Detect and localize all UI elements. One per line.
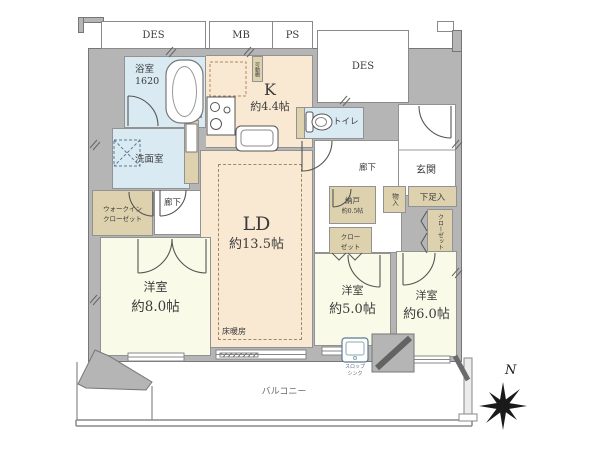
room-bedroom-8: 洋室 約8.0帖 [100,237,211,356]
room-des-right: DES [317,30,409,103]
bedroom-8-size: 約8.0帖 [131,295,179,315]
wall-stub-topright [452,30,462,52]
bedroom-5-size: 約5.0帖 [329,298,376,317]
room-washroom: 洗面室 [112,128,190,189]
slop-sink-label: スロップ シンク [333,364,377,377]
ld-name: LD [243,213,271,237]
movable-shelf: 可動棚 [252,56,263,82]
kitchen-name: K [264,80,276,100]
linen-storage-label: リネン庫 [176,110,196,117]
ps-label: PS [286,30,300,41]
shoe-cabinet-label: 下足入 [420,191,446,203]
monoire-label: 物入 [390,193,400,206]
ld-size: 約13.5帖 [229,237,284,253]
closet-center-label: クロー ゼット [341,231,361,251]
ld-label: LD 約13.5帖 [201,213,312,253]
closet-right-label: クローゼット [436,214,445,250]
closet-right: クローゼット [427,209,453,254]
walk-in-closet: ウォークイン クローゼット [92,190,153,236]
bedroom-8-name: 洋室 [143,278,167,295]
wall-stub-topleft-vert [78,17,84,33]
mb-label: MB [232,30,250,41]
closet-center: クロー ゼット [329,227,372,254]
toilet-shelf [297,108,305,138]
des-right-label: DES [352,61,374,72]
hallway-left-label: 廊下 [164,198,181,209]
entrance-label: 玄関 [416,165,436,178]
bedroom-6-name: 洋室 [416,287,438,303]
balcony-label: バルコニー [234,387,334,398]
balcony-right-post-base [459,414,477,421]
room-toilet: トイレ [296,107,364,139]
floorplan-canvas: DES MB PS DES 浴室 1620 K 約4.4帖 可動棚 トイレ 洗面… [0,0,600,450]
room-bedroom-5: 洋室 約5.0帖 [314,253,391,346]
room-ps: PS [272,22,312,48]
hallway-left: 廊下 [154,190,204,235]
room-mb: MB [210,22,272,48]
walk-in-closet-label: ウォークイン クローゼット [103,203,142,223]
floor-heating-label: 床暖房 [222,327,246,337]
compass-north-label: N [505,363,516,379]
compass-icon [479,382,527,430]
room-living-dining: 床暖房 LD 約13.5帖 [200,150,313,348]
bedroom-5-name: 洋室 [342,282,364,298]
des-left-label: DES [142,30,164,41]
linen-storage: リネン庫 [170,108,202,118]
nando-size: 約0.5帖 [342,206,364,215]
nando-name: 納戸 [345,195,360,206]
room-entrance: 玄関 [398,104,456,196]
room-mb-ps: MB PS [209,21,313,49]
hallway-right-label: 廊下 [359,163,376,174]
bedroom-6-size: 約6.0帖 [403,303,450,322]
toilet-label: トイレ [333,117,359,128]
storage-nando: 納戸 約0.5帖 [329,186,376,224]
room-des-left: DES [101,21,206,49]
storage-monoire: 物入 [383,186,406,213]
shoe-cabinet: 下足入 [408,186,457,207]
washroom-cabinet [184,120,199,184]
washroom-label: 洗面室 [135,154,164,166]
kitchen-size: 約4.4帖 [250,100,290,114]
bathroom-label: 浴室 1620 [135,64,159,88]
balcony-right-post [464,358,472,416]
movable-shelf-label: 可動棚 [254,62,261,77]
room-bedroom-6: 洋室 約6.0帖 [396,251,457,357]
